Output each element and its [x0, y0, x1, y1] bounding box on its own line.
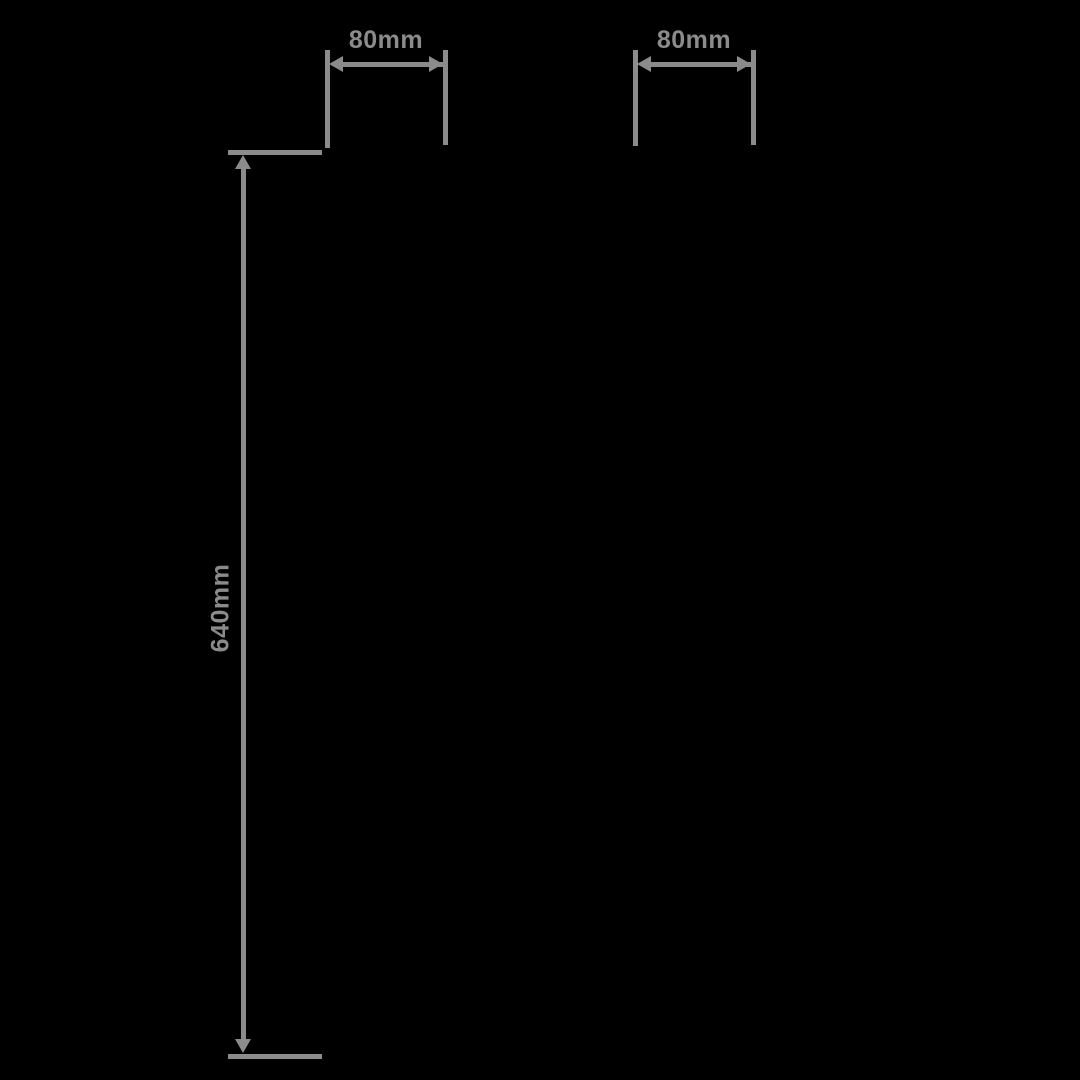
arrow-right-icon — [737, 56, 751, 72]
arrow-up-icon — [235, 155, 251, 169]
dimension-label-left-height: 640mm — [209, 564, 234, 653]
arrow-down-icon — [235, 1039, 251, 1053]
dimension-line — [241, 160, 246, 1048]
arrow-left-icon — [329, 56, 343, 72]
extension-line — [751, 50, 756, 145]
extension-line — [228, 1054, 322, 1059]
dimension-line — [334, 62, 443, 67]
dimension-line — [642, 62, 751, 67]
arrow-left-icon — [637, 56, 651, 72]
extension-line — [443, 50, 448, 145]
dimension-label-top-left: 80mm — [325, 28, 447, 53]
extension-line — [228, 150, 322, 155]
arrow-right-icon — [429, 56, 443, 72]
dimension-label-top-right: 80mm — [633, 28, 755, 53]
dimension-diagram: 80mm 80mm 640mm — [0, 0, 1080, 1080]
